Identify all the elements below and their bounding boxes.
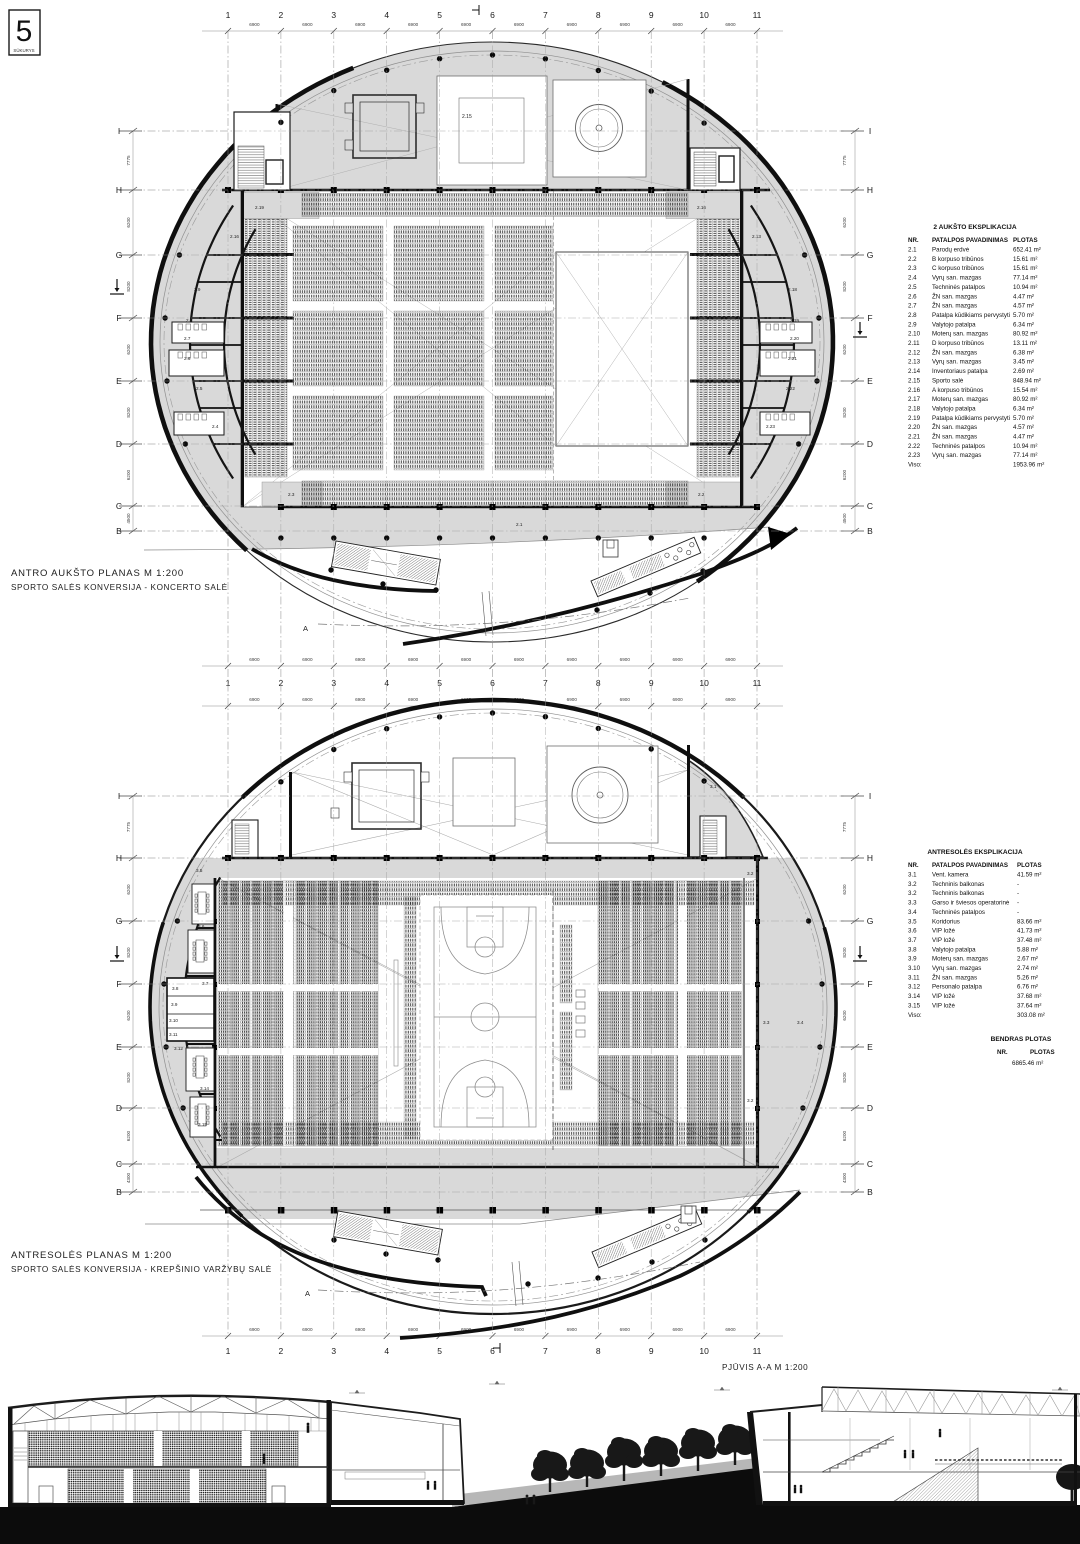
svg-text:2.8: 2.8 <box>186 318 193 323</box>
svg-text:ANTRESOLĖS EKSPLIKACIJA: ANTRESOLĖS EKSPLIKACIJA <box>927 848 1022 856</box>
svg-text:6900: 6900 <box>567 1327 578 1332</box>
svg-text:6900: 6900 <box>567 657 578 662</box>
svg-text:6900: 6900 <box>461 657 472 662</box>
svg-text:8: 8 <box>596 10 601 20</box>
svg-text:NR.: NR. <box>908 237 919 244</box>
svg-text:ŽN san. mazgas: ŽN san. mazgas <box>932 292 977 300</box>
svg-text:6900: 6900 <box>620 657 631 662</box>
svg-text:2.3: 2.3 <box>288 492 295 497</box>
svg-text:6900: 6900 <box>620 697 631 702</box>
svg-text:3.1: 3.1 <box>908 872 917 879</box>
svg-text:Vyrų san. mazgas: Vyrų san. mazgas <box>932 275 981 282</box>
svg-text:6900: 6900 <box>408 697 419 702</box>
svg-text:6200: 6200 <box>842 884 847 895</box>
svg-text:6900: 6900 <box>620 1327 631 1332</box>
svg-text:Valytojo patalpa: Valytojo patalpa <box>932 406 976 413</box>
svg-text:9: 9 <box>649 1346 654 1356</box>
svg-text:7775: 7775 <box>842 821 847 832</box>
svg-text:SŪKURYS: SŪKURYS <box>13 48 34 53</box>
svg-text:E: E <box>867 376 873 386</box>
svg-text:3.5: 3.5 <box>908 918 917 925</box>
svg-text:Vyrų san. mazgas: Vyrų san. mazgas <box>932 452 981 459</box>
svg-text:37.48 m²: 37.48 m² <box>1017 937 1041 944</box>
svg-text:PLOTAS: PLOTAS <box>1013 237 1038 244</box>
svg-text:2.20: 2.20 <box>790 336 799 341</box>
svg-text:3.1: 3.1 <box>710 784 717 789</box>
svg-text:2.7: 2.7 <box>184 336 191 341</box>
svg-text:7775: 7775 <box>842 155 847 166</box>
svg-text:2.17: 2.17 <box>908 396 921 403</box>
svg-text:2.67 m²: 2.67 m² <box>1017 956 1038 963</box>
svg-text:6.38 m²: 6.38 m² <box>1013 349 1034 356</box>
svg-text:H: H <box>867 185 873 195</box>
svg-text:2.74 m²: 2.74 m² <box>1017 965 1038 972</box>
svg-text:2.1: 2.1 <box>908 247 917 254</box>
svg-text:2: 2 <box>279 1346 284 1356</box>
svg-text:B: B <box>867 526 873 536</box>
svg-text:303.08 m²: 303.08 m² <box>1017 1012 1045 1019</box>
svg-text:2.10: 2.10 <box>908 331 921 338</box>
svg-text:3.11: 3.11 <box>169 1032 178 1037</box>
svg-text:2.6: 2.6 <box>908 293 917 300</box>
svg-text:11: 11 <box>753 10 762 20</box>
svg-text:2.19: 2.19 <box>255 205 264 210</box>
svg-text:2.20: 2.20 <box>908 424 921 431</box>
svg-text:6900: 6900 <box>408 22 419 27</box>
svg-text:6900: 6900 <box>514 1327 525 1332</box>
svg-text:5.70 m²: 5.70 m² <box>1013 415 1034 422</box>
svg-text:SPORTO SALĖS KONVERSIJA - KONC: SPORTO SALĖS KONVERSIJA - KONCERTO SALĖ <box>11 582 228 592</box>
svg-text:5.26 m²: 5.26 m² <box>1017 974 1038 981</box>
svg-text:-: - <box>1017 881 1019 888</box>
svg-text:Techninės patalpos: Techninės patalpos <box>932 443 985 450</box>
svg-text:6900: 6900 <box>249 22 260 27</box>
svg-text:8200: 8200 <box>126 1072 131 1083</box>
svg-text:NR.: NR. <box>997 1049 1008 1056</box>
svg-text:10.94 m²: 10.94 m² <box>1013 443 1037 450</box>
svg-text:Vent. kamera: Vent. kamera <box>932 872 969 879</box>
svg-text:37.68 m²: 37.68 m² <box>1017 993 1041 1000</box>
svg-text:848.94 m²: 848.94 m² <box>1013 377 1041 384</box>
svg-text:6900: 6900 <box>620 22 631 27</box>
svg-text:3.14: 3.14 <box>200 1086 209 1091</box>
svg-text:2.4: 2.4 <box>908 275 917 282</box>
svg-text:2.22: 2.22 <box>786 386 795 391</box>
svg-text:D: D <box>116 439 122 449</box>
svg-text:2.12: 2.12 <box>908 349 921 356</box>
svg-text:652.41 m²: 652.41 m² <box>1013 247 1041 254</box>
svg-text:3.10: 3.10 <box>169 1018 178 1023</box>
svg-text:80.92 m²: 80.92 m² <box>1013 396 1037 403</box>
svg-text:PATALPOS PAVADINIMAS: PATALPOS PAVADINIMAS <box>932 862 1008 869</box>
svg-text:2.11: 2.11 <box>908 340 920 347</box>
svg-text:D: D <box>116 1103 122 1113</box>
svg-text:6900: 6900 <box>302 22 313 27</box>
svg-text:G: G <box>867 250 874 260</box>
svg-text:6900: 6900 <box>355 697 366 702</box>
svg-text:Patalpa kūdikiams pervystyti: Patalpa kūdikiams pervystyti <box>932 415 1010 422</box>
svg-text:Moterų san. mazgas: Moterų san. mazgas <box>932 331 988 338</box>
svg-text:ŽN san. mazgas: ŽN san. mazgas <box>932 433 977 441</box>
svg-text:Techninis balkonas: Techninis balkonas <box>932 881 984 888</box>
svg-text:Moterų san. mazgas: Moterų san. mazgas <box>932 396 988 403</box>
svg-text:6.34 m²: 6.34 m² <box>1013 321 1034 328</box>
svg-text:ŽN san. mazgas: ŽN san. mazgas <box>932 423 977 431</box>
svg-text:3.6: 3.6 <box>198 924 205 929</box>
svg-text:6900: 6900 <box>514 657 525 662</box>
svg-text:2 AUKŠTO EKSPLIKACIJA: 2 AUKŠTO EKSPLIKACIJA <box>933 222 1016 231</box>
svg-text:3.2: 3.2 <box>747 1098 754 1103</box>
svg-text:VIP ložė: VIP ložė <box>932 993 955 1000</box>
svg-text:Techninės patalpos: Techninės patalpos <box>932 284 985 291</box>
svg-text:6900: 6900 <box>302 657 313 662</box>
svg-text:Parodų erdvė: Parodų erdvė <box>932 247 970 254</box>
svg-text:3.2: 3.2 <box>908 890 917 897</box>
svg-text:6200: 6200 <box>126 884 131 895</box>
svg-text:5: 5 <box>437 10 442 20</box>
svg-text:Techninės patalpos: Techninės patalpos <box>932 909 985 916</box>
svg-text:2.8: 2.8 <box>908 312 917 319</box>
svg-text:F: F <box>116 979 121 989</box>
svg-text:Valytojo patalpa: Valytojo patalpa <box>932 321 976 328</box>
svg-text:Vyrų san. mazgas: Vyrų san. mazgas <box>932 359 981 366</box>
svg-text:VIP ložė: VIP ložė <box>932 928 955 935</box>
svg-text:2.9: 2.9 <box>908 321 917 328</box>
svg-text:G: G <box>116 250 123 260</box>
svg-text:Valytojo patalpa: Valytojo patalpa <box>932 946 976 953</box>
svg-text:C: C <box>867 501 873 511</box>
svg-text:6: 6 <box>490 10 495 20</box>
svg-text:2.15: 2.15 <box>462 114 472 120</box>
svg-text:6900: 6900 <box>672 22 683 27</box>
svg-text:15.61 m²: 15.61 m² <box>1013 265 1037 272</box>
svg-text:4500: 4500 <box>842 513 847 524</box>
svg-text:2.18: 2.18 <box>908 406 921 413</box>
svg-text:3.3: 3.3 <box>908 900 917 907</box>
svg-text:6900: 6900 <box>514 22 525 27</box>
svg-text:Inventoriaus patalpa: Inventoriaus patalpa <box>932 368 988 375</box>
svg-text:2.4: 2.4 <box>212 424 219 429</box>
svg-text:6200: 6200 <box>842 344 847 355</box>
svg-text:6900: 6900 <box>249 697 260 702</box>
svg-text:15.54 m²: 15.54 m² <box>1013 387 1037 394</box>
svg-text:I: I <box>869 126 871 136</box>
svg-text:41.73 m²: 41.73 m² <box>1017 928 1041 935</box>
svg-text:2.69 m²: 2.69 m² <box>1013 368 1034 375</box>
svg-text:6900: 6900 <box>725 657 736 662</box>
svg-text:Garso ir šviesos operatorinė: Garso ir šviesos operatorinė <box>932 900 1010 907</box>
svg-text:10.94 m²: 10.94 m² <box>1013 284 1037 291</box>
svg-text:6900: 6900 <box>672 1327 683 1332</box>
svg-text:4.57 m²: 4.57 m² <box>1013 303 1034 310</box>
svg-text:6900: 6900 <box>567 22 578 27</box>
svg-text:10: 10 <box>699 10 709 20</box>
svg-text:6900: 6900 <box>355 22 366 27</box>
svg-text:3.7: 3.7 <box>908 937 917 944</box>
svg-text:3: 3 <box>331 1346 336 1356</box>
svg-text:ŽN san. mazgas: ŽN san. mazgas <box>932 348 977 356</box>
svg-text:3.6: 3.6 <box>908 928 917 935</box>
svg-text:2.5: 2.5 <box>908 284 917 291</box>
svg-text:6900: 6900 <box>725 22 736 27</box>
svg-text:7775: 7775 <box>126 155 131 166</box>
svg-text:SPORTO SALĖS KONVERSIJA - KREP: SPORTO SALĖS KONVERSIJA - KREPŠINIO VARŽ… <box>11 1264 272 1274</box>
svg-text:Viso:: Viso: <box>908 1012 922 1019</box>
svg-text:6900: 6900 <box>249 1327 260 1332</box>
svg-text:3.15: 3.15 <box>908 1002 921 1009</box>
svg-text:3.15: 3.15 <box>198 1122 207 1127</box>
svg-text:BENDRAS PLOTAS: BENDRAS PLOTAS <box>991 1036 1052 1043</box>
svg-text:PJŪVIS A-A M 1:200: PJŪVIS A-A M 1:200 <box>722 1362 808 1372</box>
svg-text:ŽN san. mazgas: ŽN san. mazgas <box>932 302 977 310</box>
svg-text:2.21: 2.21 <box>908 434 921 441</box>
svg-text:ANTRESOLĖS PLANAS M 1:200: ANTRESOLĖS PLANAS M 1:200 <box>11 1250 172 1261</box>
svg-text:4300: 4300 <box>842 1172 847 1183</box>
svg-text:E: E <box>116 1042 122 1052</box>
svg-text:4.57 m²: 4.57 m² <box>1013 424 1034 431</box>
svg-text:2.15: 2.15 <box>908 377 921 384</box>
svg-text:5: 5 <box>437 1346 442 1356</box>
svg-text:2.6: 2.6 <box>184 356 191 361</box>
svg-text:2.7: 2.7 <box>908 303 917 310</box>
svg-text:-: - <box>1017 900 1019 907</box>
svg-text:H: H <box>116 185 122 195</box>
svg-text:6200: 6200 <box>126 344 131 355</box>
svg-text:C: C <box>116 1159 122 1169</box>
svg-text:I: I <box>118 791 120 801</box>
svg-text:8200: 8200 <box>842 281 847 292</box>
svg-text:2.2: 2.2 <box>908 256 917 263</box>
svg-text:ANTRO AUKŠTO PLANAS M 1:200: ANTRO AUKŠTO PLANAS M 1:200 <box>11 568 184 579</box>
svg-text:6900: 6900 <box>355 657 366 662</box>
svg-text:2.19: 2.19 <box>908 415 921 422</box>
svg-text:6900: 6900 <box>355 1327 366 1332</box>
svg-text:80.92 m²: 80.92 m² <box>1013 331 1037 338</box>
svg-text:6200: 6200 <box>842 1010 847 1021</box>
svg-text:4: 4 <box>384 1346 389 1356</box>
svg-text:13.11 m²: 13.11 m² <box>1013 340 1037 347</box>
svg-text:5.70 m²: 5.70 m² <box>1013 312 1034 319</box>
svg-text:2.23: 2.23 <box>766 424 775 429</box>
svg-text:3.4: 3.4 <box>797 1020 804 1025</box>
svg-text:3.2: 3.2 <box>747 871 754 876</box>
svg-text:PLOTAS: PLOTAS <box>1017 862 1042 869</box>
svg-text:4: 4 <box>384 10 389 20</box>
svg-text:Sporto salė: Sporto salė <box>932 377 964 384</box>
svg-text:C: C <box>116 501 122 511</box>
svg-text:H: H <box>116 853 122 863</box>
svg-text:6900: 6900 <box>302 1327 313 1332</box>
svg-text:6200: 6200 <box>126 1130 131 1141</box>
svg-text:8: 8 <box>596 1346 601 1356</box>
svg-text:3.14: 3.14 <box>908 993 921 1000</box>
svg-text:3: 3 <box>331 10 336 20</box>
svg-text:2.23: 2.23 <box>908 452 921 459</box>
svg-text:F: F <box>116 313 121 323</box>
svg-text:B: B <box>116 526 122 536</box>
svg-text:3.3: 3.3 <box>763 1020 770 1025</box>
svg-text:6900: 6900 <box>672 697 683 702</box>
svg-text:I: I <box>869 791 871 801</box>
svg-text:I: I <box>118 126 120 136</box>
svg-text:6900: 6900 <box>302 697 313 702</box>
svg-text:6900: 6900 <box>408 657 419 662</box>
svg-text:8200: 8200 <box>126 407 131 418</box>
svg-text:C: C <box>867 1159 873 1169</box>
svg-text:3.11: 3.11 <box>908 974 920 981</box>
svg-text:-: - <box>1017 890 1019 897</box>
svg-text:2.19: 2.19 <box>790 318 799 323</box>
svg-text:6200: 6200 <box>126 1010 131 1021</box>
svg-text:6900: 6900 <box>249 657 260 662</box>
svg-text:77.14 m²: 77.14 m² <box>1013 452 1037 459</box>
svg-text:2.14: 2.14 <box>908 368 921 375</box>
svg-text:VIP ložė: VIP ložė <box>932 937 955 944</box>
svg-text:6200: 6200 <box>842 469 847 480</box>
svg-text:2.22: 2.22 <box>908 443 921 450</box>
svg-text:3.12: 3.12 <box>908 984 921 991</box>
svg-text:PLOTAS: PLOTAS <box>1030 1049 1055 1056</box>
svg-text:C korpuso tribūnos: C korpuso tribūnos <box>932 265 984 272</box>
svg-text:6900: 6900 <box>408 1327 419 1332</box>
svg-text:8200: 8200 <box>842 947 847 958</box>
svg-text:6.34 m²: 6.34 m² <box>1013 406 1034 413</box>
svg-text:6900: 6900 <box>567 697 578 702</box>
svg-text:6900: 6900 <box>672 657 683 662</box>
svg-text:11: 11 <box>753 1346 762 1356</box>
svg-text:PATALPOS PAVADINIMAS: PATALPOS PAVADINIMAS <box>932 237 1008 244</box>
svg-text:Personalo patalpa: Personalo patalpa <box>932 984 982 991</box>
svg-text:2.16: 2.16 <box>697 205 706 210</box>
svg-text:4300: 4300 <box>126 1172 131 1183</box>
svg-text:6200: 6200 <box>126 217 131 228</box>
svg-text:2.13: 2.13 <box>908 359 921 366</box>
svg-text:2.2: 2.2 <box>698 492 705 497</box>
svg-text:A: A <box>305 1289 310 1298</box>
svg-text:3.45 m²: 3.45 m² <box>1013 359 1034 366</box>
svg-text:Moterų san. mazgas: Moterų san. mazgas <box>932 956 988 963</box>
svg-text:7: 7 <box>543 1346 548 1356</box>
svg-text:2: 2 <box>279 10 284 20</box>
svg-text:D korpuso tribūnos: D korpuso tribūnos <box>932 340 984 347</box>
svg-text:D: D <box>867 439 873 449</box>
svg-text:Koridorius: Koridorius <box>932 918 960 925</box>
svg-text:6900: 6900 <box>461 22 472 27</box>
svg-text:2.18: 2.18 <box>788 287 797 292</box>
svg-text:8200: 8200 <box>126 947 131 958</box>
svg-text:3.8: 3.8 <box>172 986 179 991</box>
svg-text:6200: 6200 <box>842 1130 847 1141</box>
svg-text:A: A <box>303 624 308 633</box>
svg-text:B: B <box>867 1187 873 1197</box>
svg-text:83.66 m²: 83.66 m² <box>1017 918 1041 925</box>
svg-text:15.61 m²: 15.61 m² <box>1013 256 1037 263</box>
svg-text:2.5: 2.5 <box>196 386 203 391</box>
svg-text:2.21: 2.21 <box>788 356 797 361</box>
svg-text:6900: 6900 <box>725 1327 736 1332</box>
svg-text:3.4: 3.4 <box>908 909 917 916</box>
svg-text:F: F <box>867 313 872 323</box>
svg-text:5.88 m²: 5.88 m² <box>1017 946 1038 953</box>
svg-text:2.3: 2.3 <box>908 265 917 272</box>
svg-text:3.5: 3.5 <box>196 868 203 873</box>
svg-text:6900: 6900 <box>725 697 736 702</box>
svg-text:A korpuso tribūnos: A korpuso tribūnos <box>932 387 983 394</box>
svg-text:VIP ložė: VIP ložė <box>932 1002 955 1009</box>
svg-text:6200: 6200 <box>126 469 131 480</box>
svg-text:D: D <box>867 1103 873 1113</box>
svg-text:4.47 m²: 4.47 m² <box>1013 293 1034 300</box>
svg-text:3.9: 3.9 <box>908 956 917 963</box>
svg-text:2.16: 2.16 <box>230 234 239 239</box>
svg-text:B: B <box>116 1187 122 1197</box>
svg-text:1953.96 m²: 1953.96 m² <box>1013 462 1044 469</box>
svg-text:37.64 m²: 37.64 m² <box>1017 1002 1041 1009</box>
svg-text:9: 9 <box>649 10 654 20</box>
svg-text:G: G <box>867 916 874 926</box>
svg-text:8200: 8200 <box>126 281 131 292</box>
svg-text:E: E <box>116 376 122 386</box>
svg-text:F: F <box>867 979 872 989</box>
svg-text:6865.46 m²: 6865.46 m² <box>1012 1060 1043 1067</box>
svg-text:2.1: 2.1 <box>516 522 523 527</box>
svg-text:3.7: 3.7 <box>202 981 209 986</box>
svg-text:7775: 7775 <box>126 821 131 832</box>
svg-text:41.59 m²: 41.59 m² <box>1017 872 1041 879</box>
svg-text:1: 1 <box>226 10 231 20</box>
svg-text:B korpuso tribūnos: B korpuso tribūnos <box>932 256 984 263</box>
svg-text:7: 7 <box>543 10 548 20</box>
svg-text:Patalpa kūdikiams pervystyti: Patalpa kūdikiams pervystyti <box>932 312 1010 319</box>
svg-text:1: 1 <box>226 1346 231 1356</box>
svg-text:Viso:: Viso: <box>908 462 922 469</box>
svg-text:Techninis balkonas: Techninis balkonas <box>932 890 984 897</box>
svg-text:4500: 4500 <box>126 513 131 524</box>
svg-text:6.76 m²: 6.76 m² <box>1017 984 1038 991</box>
svg-text:2.13: 2.13 <box>752 234 761 239</box>
svg-text:3.2: 3.2 <box>908 881 917 888</box>
svg-text:2.9: 2.9 <box>194 287 201 292</box>
svg-text:2.16: 2.16 <box>908 387 921 394</box>
svg-text:3.10: 3.10 <box>908 965 921 972</box>
svg-text:NR.: NR. <box>908 862 919 869</box>
svg-text:H: H <box>867 853 873 863</box>
svg-text:3.8: 3.8 <box>908 946 917 953</box>
svg-text:4.47 m²: 4.47 m² <box>1013 434 1034 441</box>
svg-text:6200: 6200 <box>842 217 847 228</box>
svg-text:5: 5 <box>16 15 33 48</box>
svg-text:E: E <box>867 1042 873 1052</box>
svg-text:77.14 m²: 77.14 m² <box>1013 275 1037 282</box>
svg-text:8200: 8200 <box>842 407 847 418</box>
svg-text:Vyrų san. mazgas: Vyrų san. mazgas <box>932 965 981 972</box>
svg-text:-: - <box>1017 909 1019 916</box>
svg-text:8200: 8200 <box>842 1072 847 1083</box>
svg-text:10: 10 <box>699 1346 709 1356</box>
svg-text:G: G <box>116 916 123 926</box>
svg-text:ŽN san. mazgas: ŽN san. mazgas <box>932 973 977 981</box>
svg-text:3.9: 3.9 <box>171 1002 178 1007</box>
